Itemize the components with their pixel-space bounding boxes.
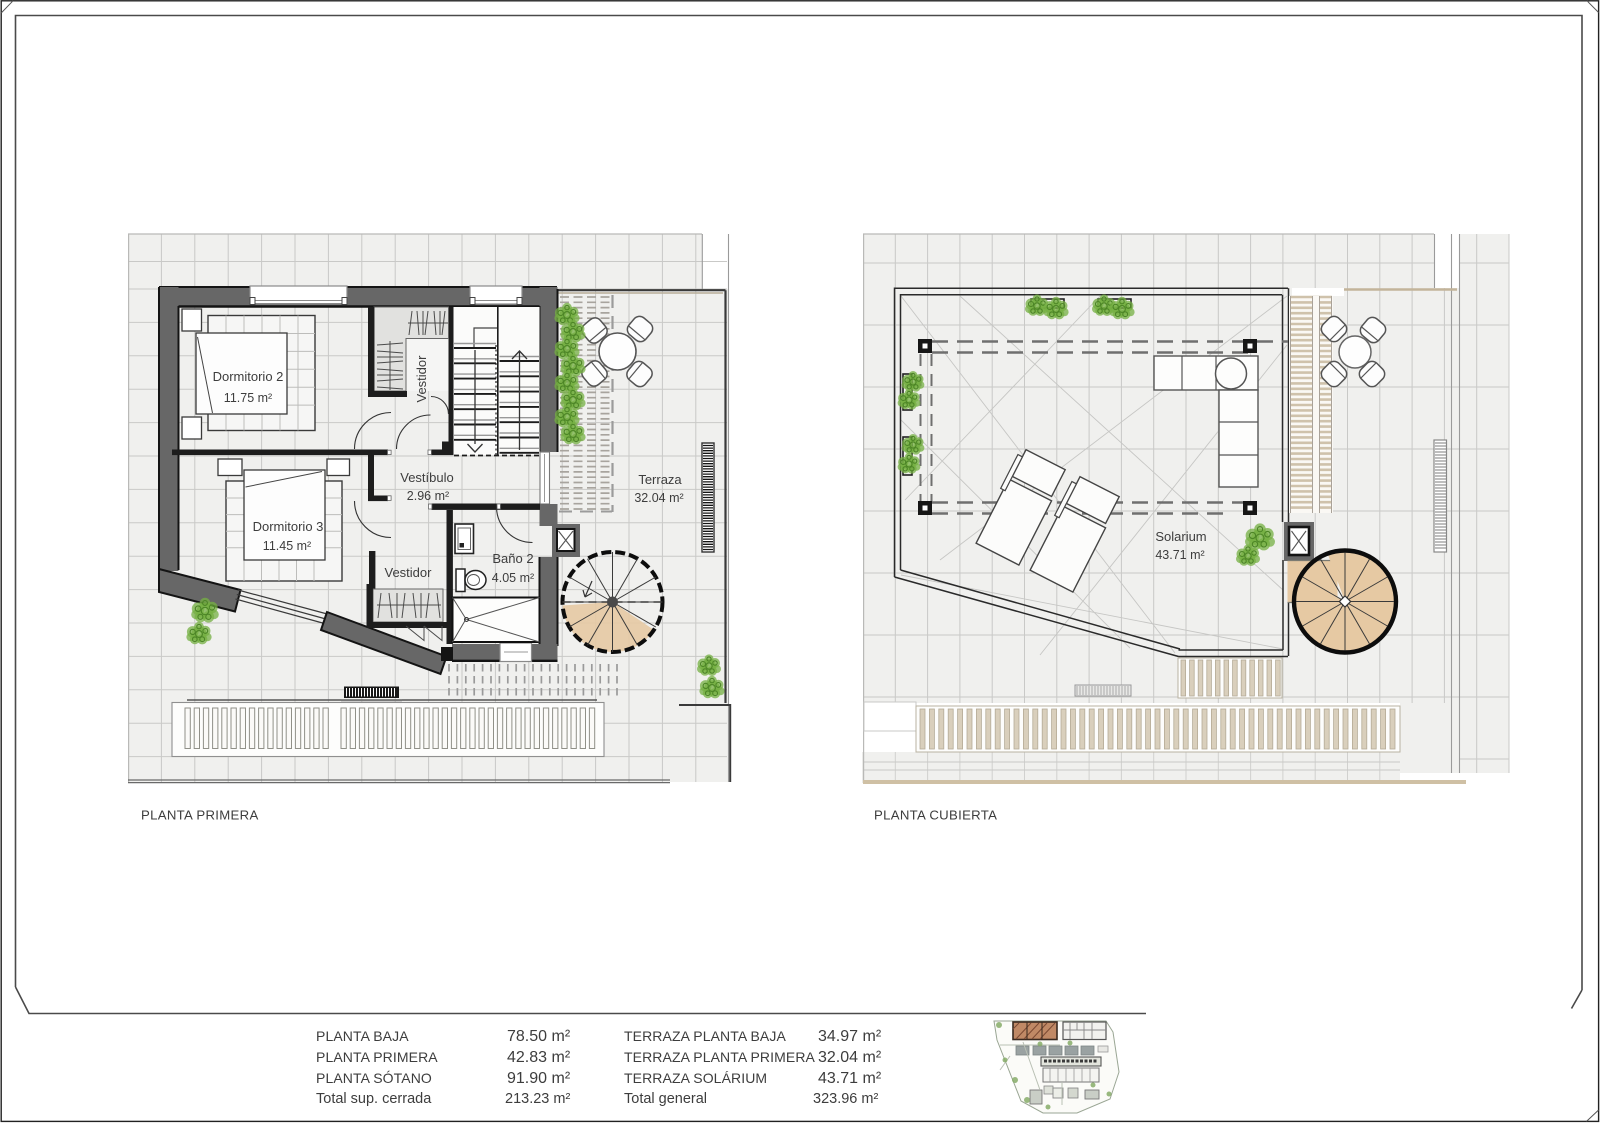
- svg-text:32.04 m²: 32.04 m²: [634, 491, 683, 505]
- svg-text:32.04 m²: 32.04 m²: [818, 1049, 882, 1066]
- svg-text:323.96 m²: 323.96 m²: [813, 1091, 878, 1107]
- svg-text:4.05 m²: 4.05 m²: [492, 571, 534, 585]
- svg-text:34.97 m²: 34.97 m²: [818, 1028, 882, 1045]
- svg-text:TERRAZA PLANTA PRIMERA: TERRAZA PLANTA PRIMERA: [624, 1049, 816, 1065]
- svg-text:Dormitorio 2: Dormitorio 2: [213, 369, 284, 384]
- svg-text:11.45 m²: 11.45 m²: [263, 539, 311, 553]
- svg-text:11.75 m²: 11.75 m²: [224, 391, 272, 405]
- svg-text:Vestíbulo: Vestíbulo: [400, 470, 454, 485]
- svg-text:Vestidor: Vestidor: [385, 565, 433, 580]
- svg-text:TERRAZA PLANTA BAJA: TERRAZA PLANTA BAJA: [624, 1028, 786, 1044]
- svg-text:PLANTA PRIMERA: PLANTA PRIMERA: [141, 808, 259, 823]
- svg-text:42.83 m²: 42.83 m²: [507, 1049, 571, 1066]
- svg-text:Total sup. cerrada: Total sup. cerrada: [316, 1091, 432, 1107]
- svg-text:2.96 m²: 2.96 m²: [407, 489, 449, 503]
- svg-text:Total general: Total general: [624, 1091, 707, 1107]
- svg-text:Baño 2: Baño 2: [492, 551, 533, 566]
- svg-text:43.71 m²: 43.71 m²: [818, 1070, 882, 1087]
- svg-text:PLANTA CUBIERTA: PLANTA CUBIERTA: [874, 808, 997, 823]
- svg-text:PLANTA PRIMERA: PLANTA PRIMERA: [316, 1049, 438, 1065]
- svg-text:Dormitorio 3: Dormitorio 3: [253, 519, 324, 534]
- svg-text:213.23 m²: 213.23 m²: [505, 1091, 570, 1107]
- svg-text:78.50 m²: 78.50 m²: [507, 1028, 571, 1045]
- svg-text:43.71 m²: 43.71 m²: [1155, 548, 1204, 562]
- svg-text:PLANTA BAJA: PLANTA BAJA: [316, 1028, 409, 1044]
- svg-text:Vestidor: Vestidor: [414, 355, 429, 403]
- svg-text:PLANTA SÓTANO: PLANTA SÓTANO: [316, 1070, 432, 1086]
- svg-text:Terraza: Terraza: [638, 472, 682, 487]
- svg-text:91.90 m²: 91.90 m²: [507, 1070, 571, 1087]
- svg-text:Solarium: Solarium: [1155, 529, 1206, 544]
- svg-text:TERRAZA SOLÁRIUM: TERRAZA SOLÁRIUM: [624, 1070, 767, 1086]
